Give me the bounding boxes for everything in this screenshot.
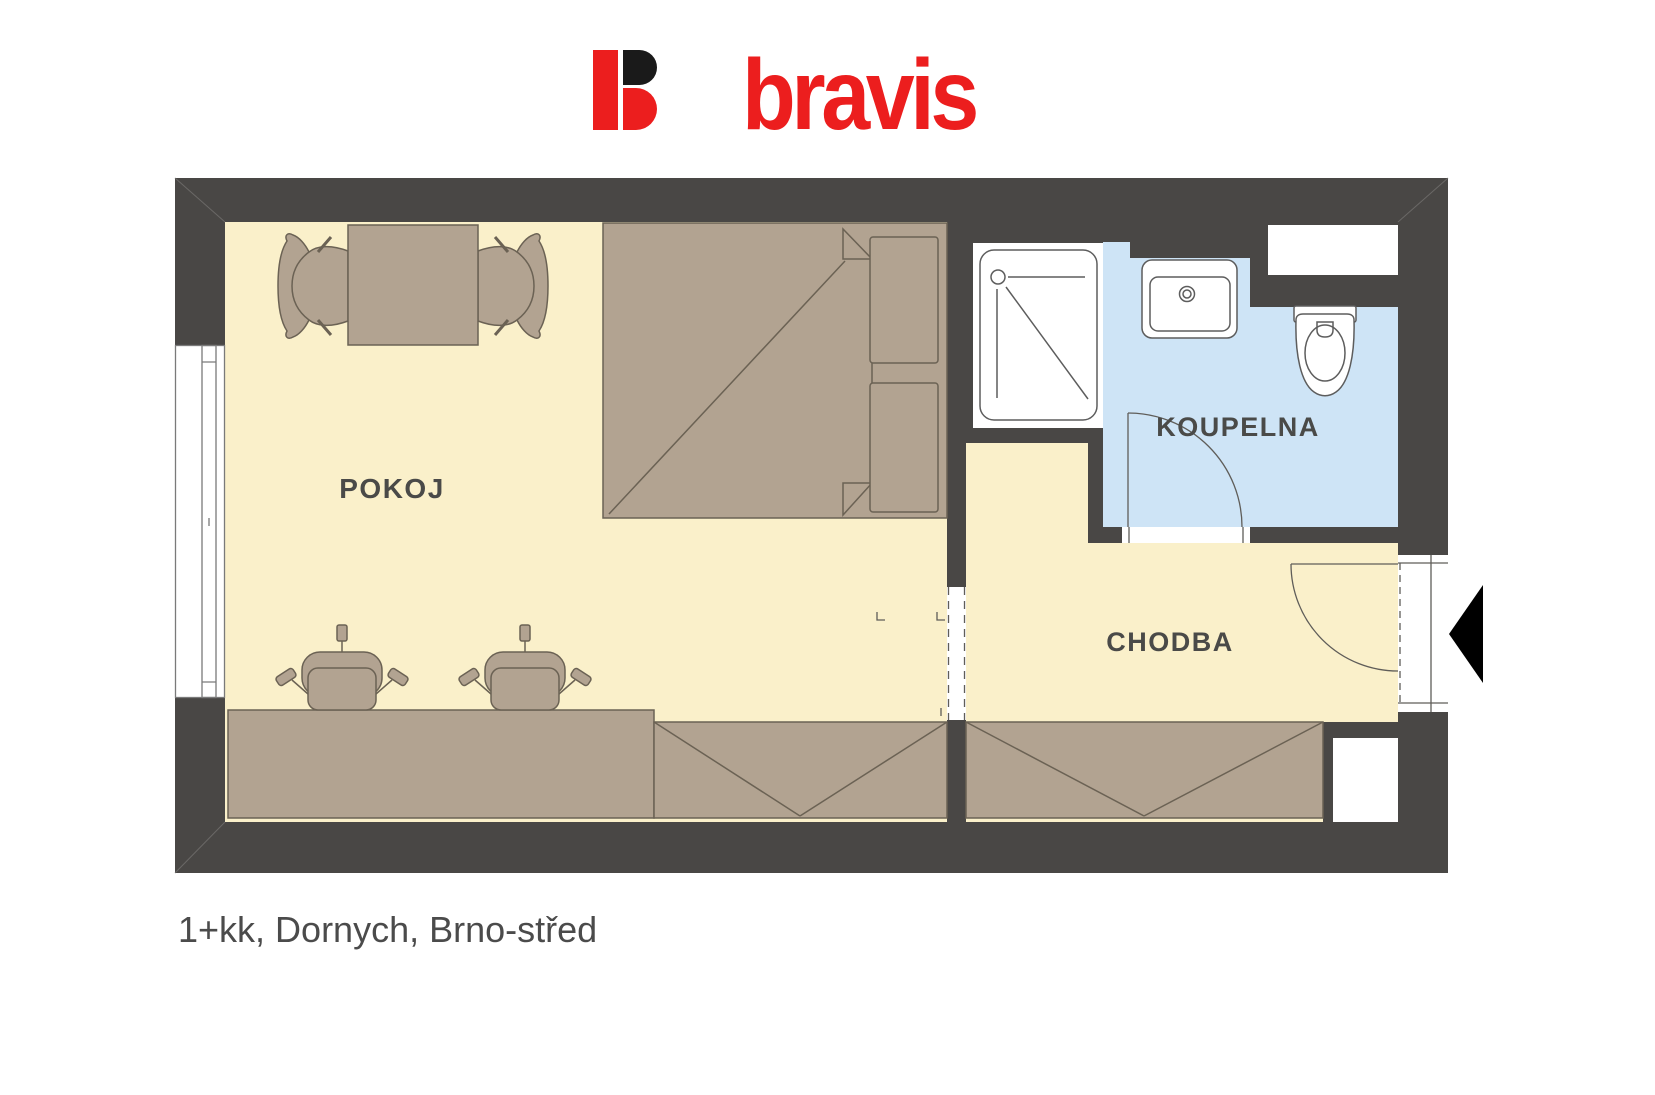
wall-bath-top-b xyxy=(1130,222,1250,258)
dining-table xyxy=(348,225,478,345)
wardrobe-pokoj xyxy=(654,722,947,818)
pokoj-chodba-opening xyxy=(947,587,966,720)
office-chair-2-headrest xyxy=(520,625,530,641)
window-opening xyxy=(175,345,225,698)
office-chair-1-seat xyxy=(308,668,376,710)
entry-door-opening xyxy=(1398,555,1448,712)
label-pokoj: POKOJ xyxy=(339,473,445,504)
wall-bath-top-a xyxy=(1103,222,1130,242)
pillow-top xyxy=(870,237,938,363)
desk xyxy=(228,710,654,818)
wall-bath-hall xyxy=(1088,443,1103,543)
office-chair-2-seat xyxy=(491,668,559,710)
listing-caption: 1+kk, Dornych, Brno-střed xyxy=(178,908,597,952)
bathroom-door-threshold xyxy=(1122,527,1250,543)
dining-chair-right xyxy=(478,234,548,338)
label-chodba: CHODBA xyxy=(1106,627,1234,657)
sink-outer xyxy=(1142,260,1237,338)
niche-top xyxy=(1268,225,1398,275)
wall-top xyxy=(175,178,1448,222)
entry-arrow xyxy=(1449,585,1483,683)
wall-shower-bottom xyxy=(947,428,1103,443)
wardrobe-chodba xyxy=(966,722,1323,818)
wall-right xyxy=(1398,222,1448,822)
pillow-bottom xyxy=(870,383,938,512)
dining-chair-left xyxy=(278,234,348,338)
wall-shower-top xyxy=(947,222,1103,243)
sink xyxy=(1142,260,1237,338)
wall-bottom xyxy=(175,822,1448,873)
label-koupelna: KOUPELNA xyxy=(1156,412,1320,442)
office-chair-1-headrest xyxy=(337,625,347,641)
niche-bottom xyxy=(1333,738,1398,822)
floorplan-page: bravis xyxy=(0,0,1655,1095)
shower xyxy=(980,250,1097,420)
wall-shower-left xyxy=(947,243,973,428)
